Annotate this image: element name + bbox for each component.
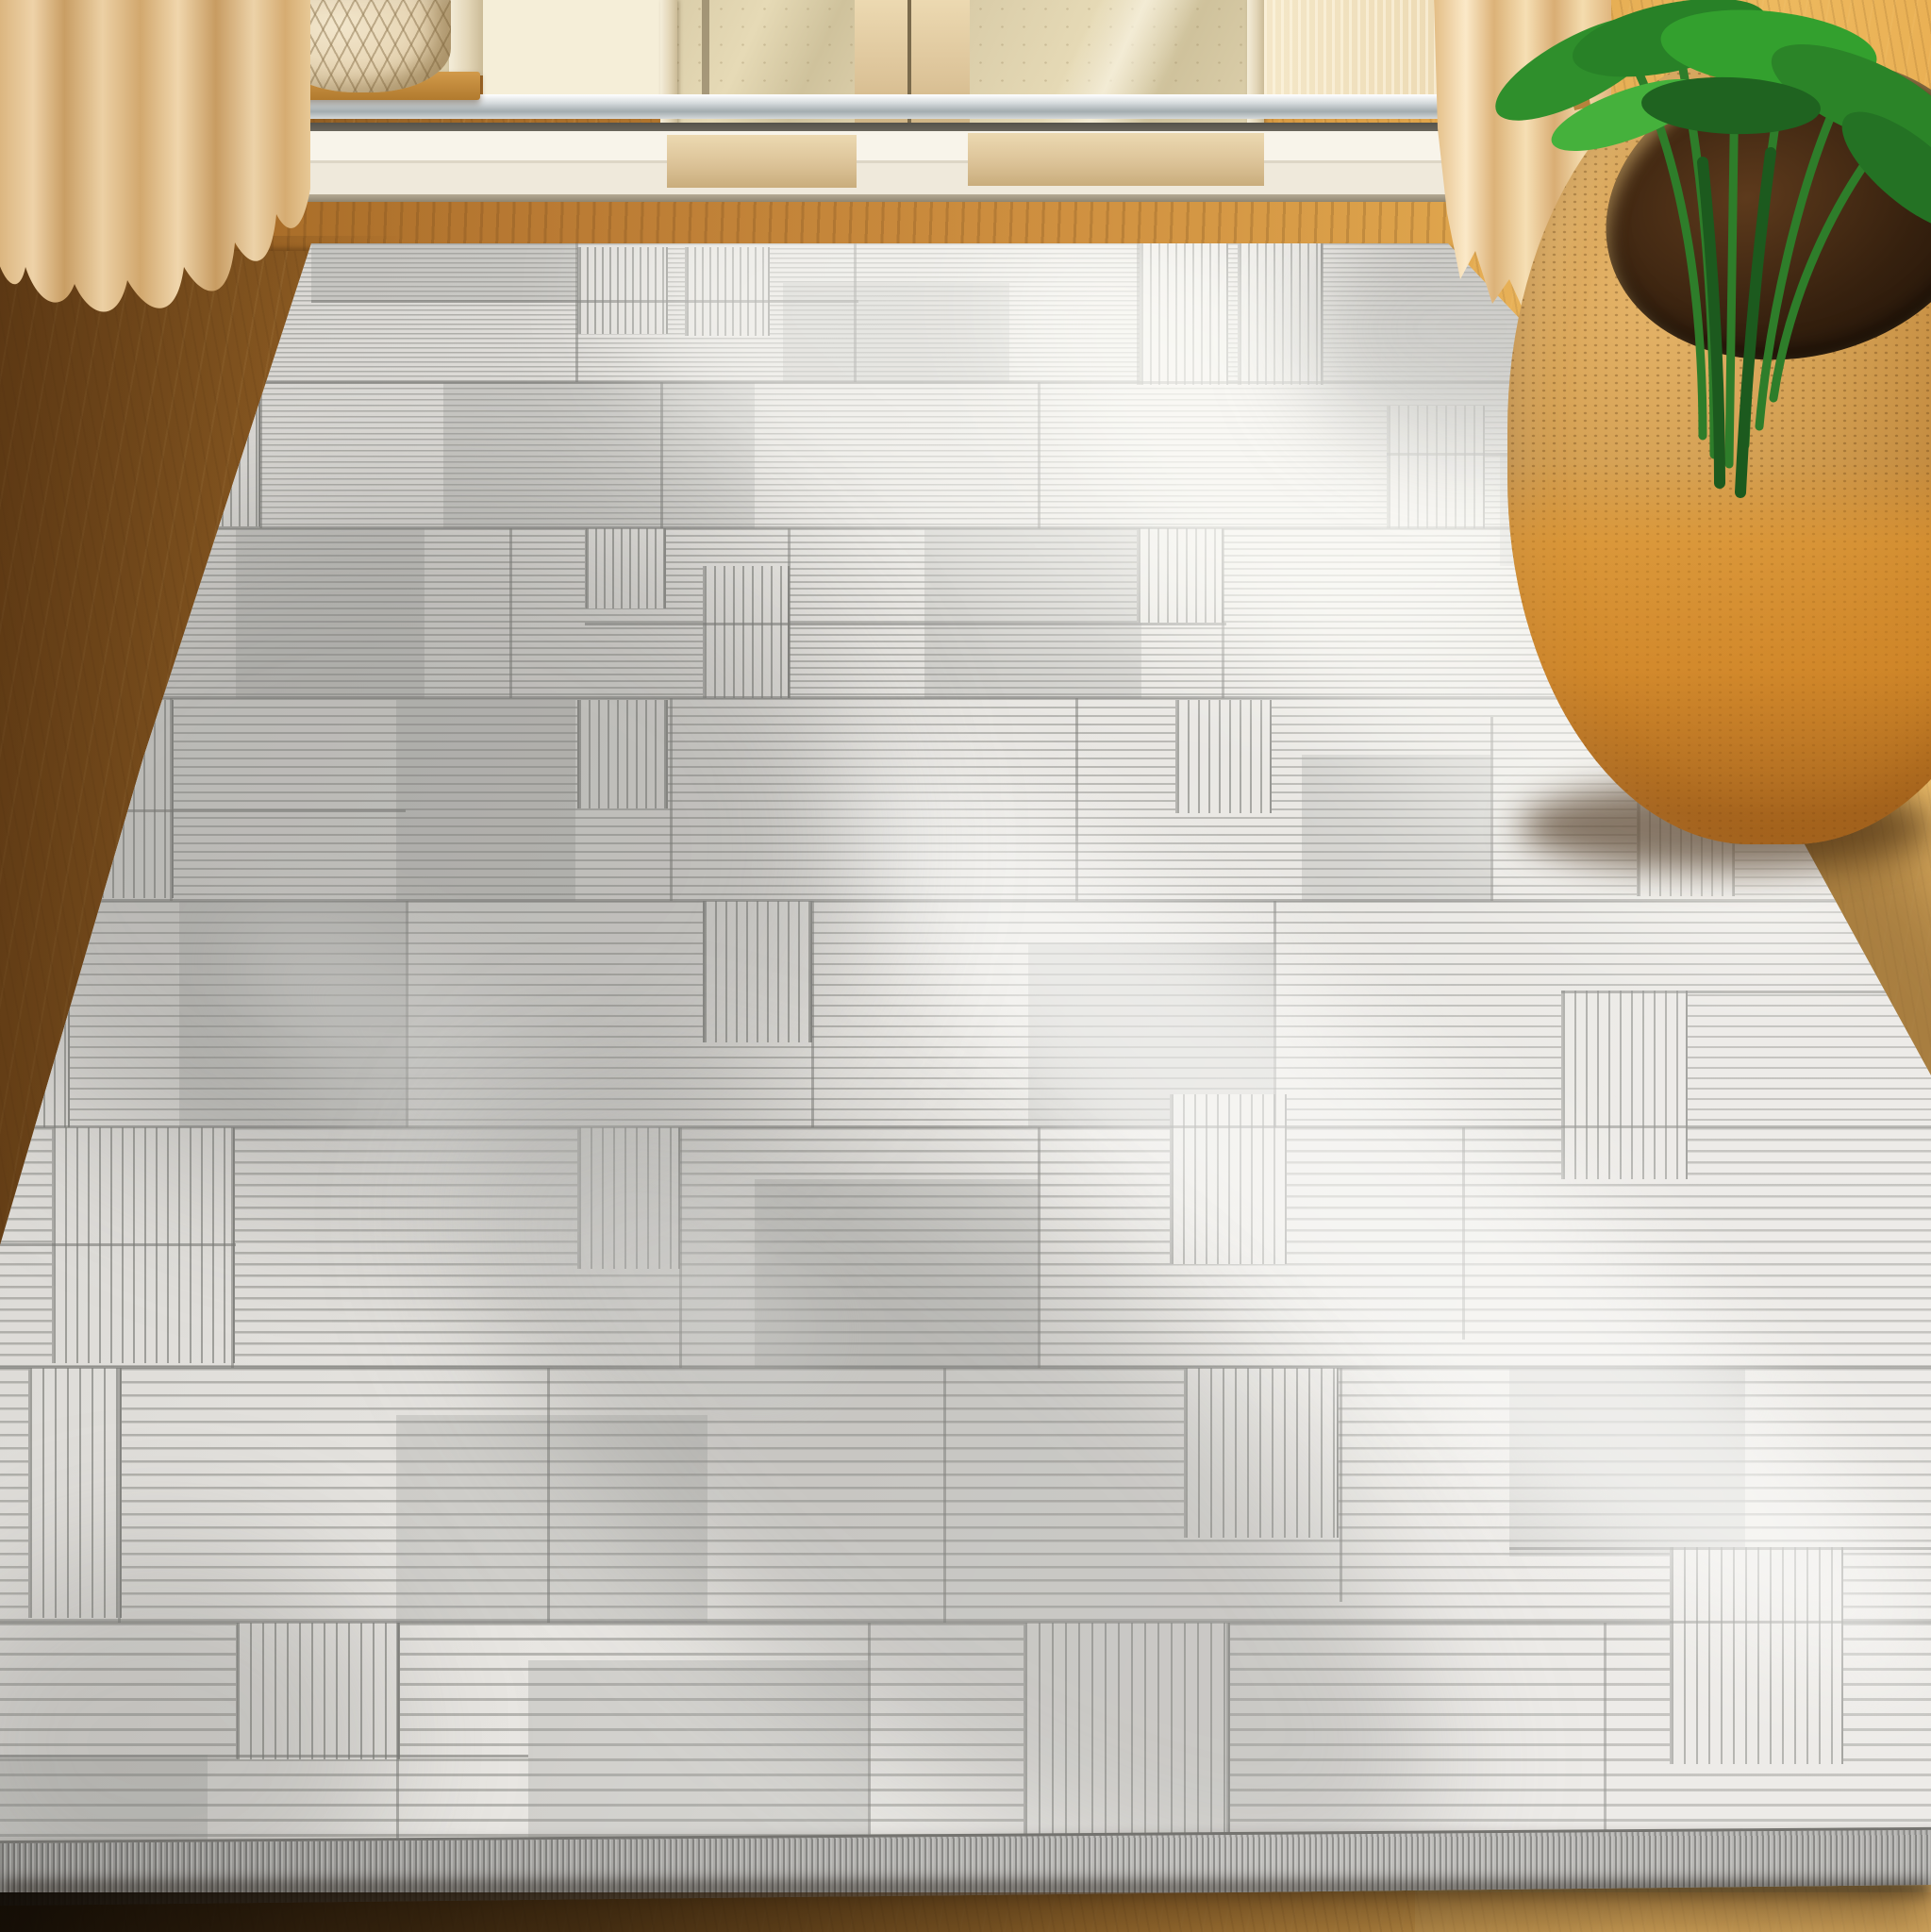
door-frame-stile xyxy=(660,0,677,142)
door-bottom-rail-left xyxy=(667,135,857,188)
window-sill-step xyxy=(283,163,1457,194)
window-frame-stile xyxy=(449,0,483,75)
curtain-left xyxy=(0,0,316,344)
palm-plant xyxy=(1467,0,1931,615)
door-track-groove xyxy=(283,123,1457,131)
window-glass-bright xyxy=(483,0,667,96)
door-bottom-rail-right xyxy=(968,133,1264,186)
living-room-photo xyxy=(0,0,1931,1932)
window-sill xyxy=(283,131,1457,163)
floor-shadow-below-rug xyxy=(0,1892,1931,1932)
window-sill-edge xyxy=(283,194,1457,202)
